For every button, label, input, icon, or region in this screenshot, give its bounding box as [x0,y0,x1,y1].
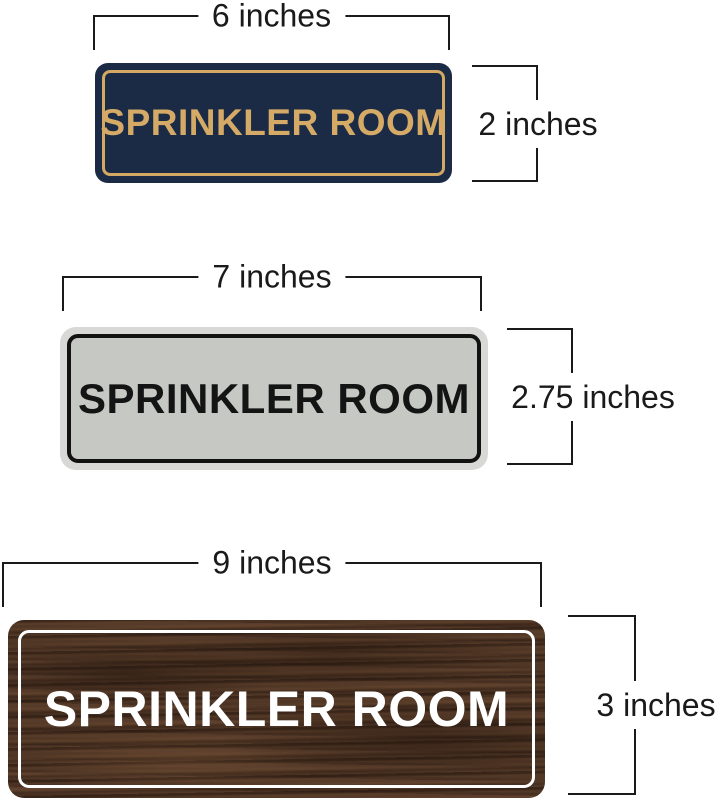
width-dimension-bracket-9in: 9 inches [2,562,542,607]
width-dimension-label: 9 inches [198,545,345,580]
width-dimension-label: 6 inches [198,0,345,34]
width-dimension-bracket-7in: 7 inches [62,276,482,311]
sign-text: SPRINKLER ROOM [8,620,545,798]
dimension-tick [540,562,542,607]
height-dimension-bracket-3in: 3 inches [568,615,636,795]
width-dimension-bracket-6in: 6 inches [93,15,450,50]
dimension-tick [93,15,95,50]
height-dimension-label: 2 inches [468,100,607,148]
dimension-tick [507,328,573,330]
dimension-tick [472,65,538,67]
height-dimension-bracket-2in: 2 inches [472,65,538,182]
dimension-tick [568,615,636,617]
height-dimension-bracket-2-75in: 2.75 inches [507,328,573,465]
dimension-tick [62,276,64,311]
dimension-tick [472,180,538,182]
sign-size-comparison-figure: 6 inches SPRINKLER ROOM 2 inches 7 inche… [0,0,722,805]
dimension-tick [568,793,636,795]
sign-text: SPRINKLER ROOM [60,327,488,470]
dimension-tick [480,276,482,311]
dimension-tick [507,463,573,465]
walnut-wood-sprinkler-room-sign: SPRINKLER ROOM [8,620,545,798]
navy-gold-sprinkler-room-sign: SPRINKLER ROOM [95,63,452,183]
height-dimension-label: 3 inches [586,681,722,729]
height-dimension-label: 2.75 inches [501,373,685,421]
sign-text: SPRINKLER ROOM [95,63,452,183]
width-dimension-label: 7 inches [198,259,345,294]
silver-black-sprinkler-room-sign: SPRINKLER ROOM [60,327,488,470]
dimension-tick [448,15,450,50]
dimension-tick [2,562,4,607]
